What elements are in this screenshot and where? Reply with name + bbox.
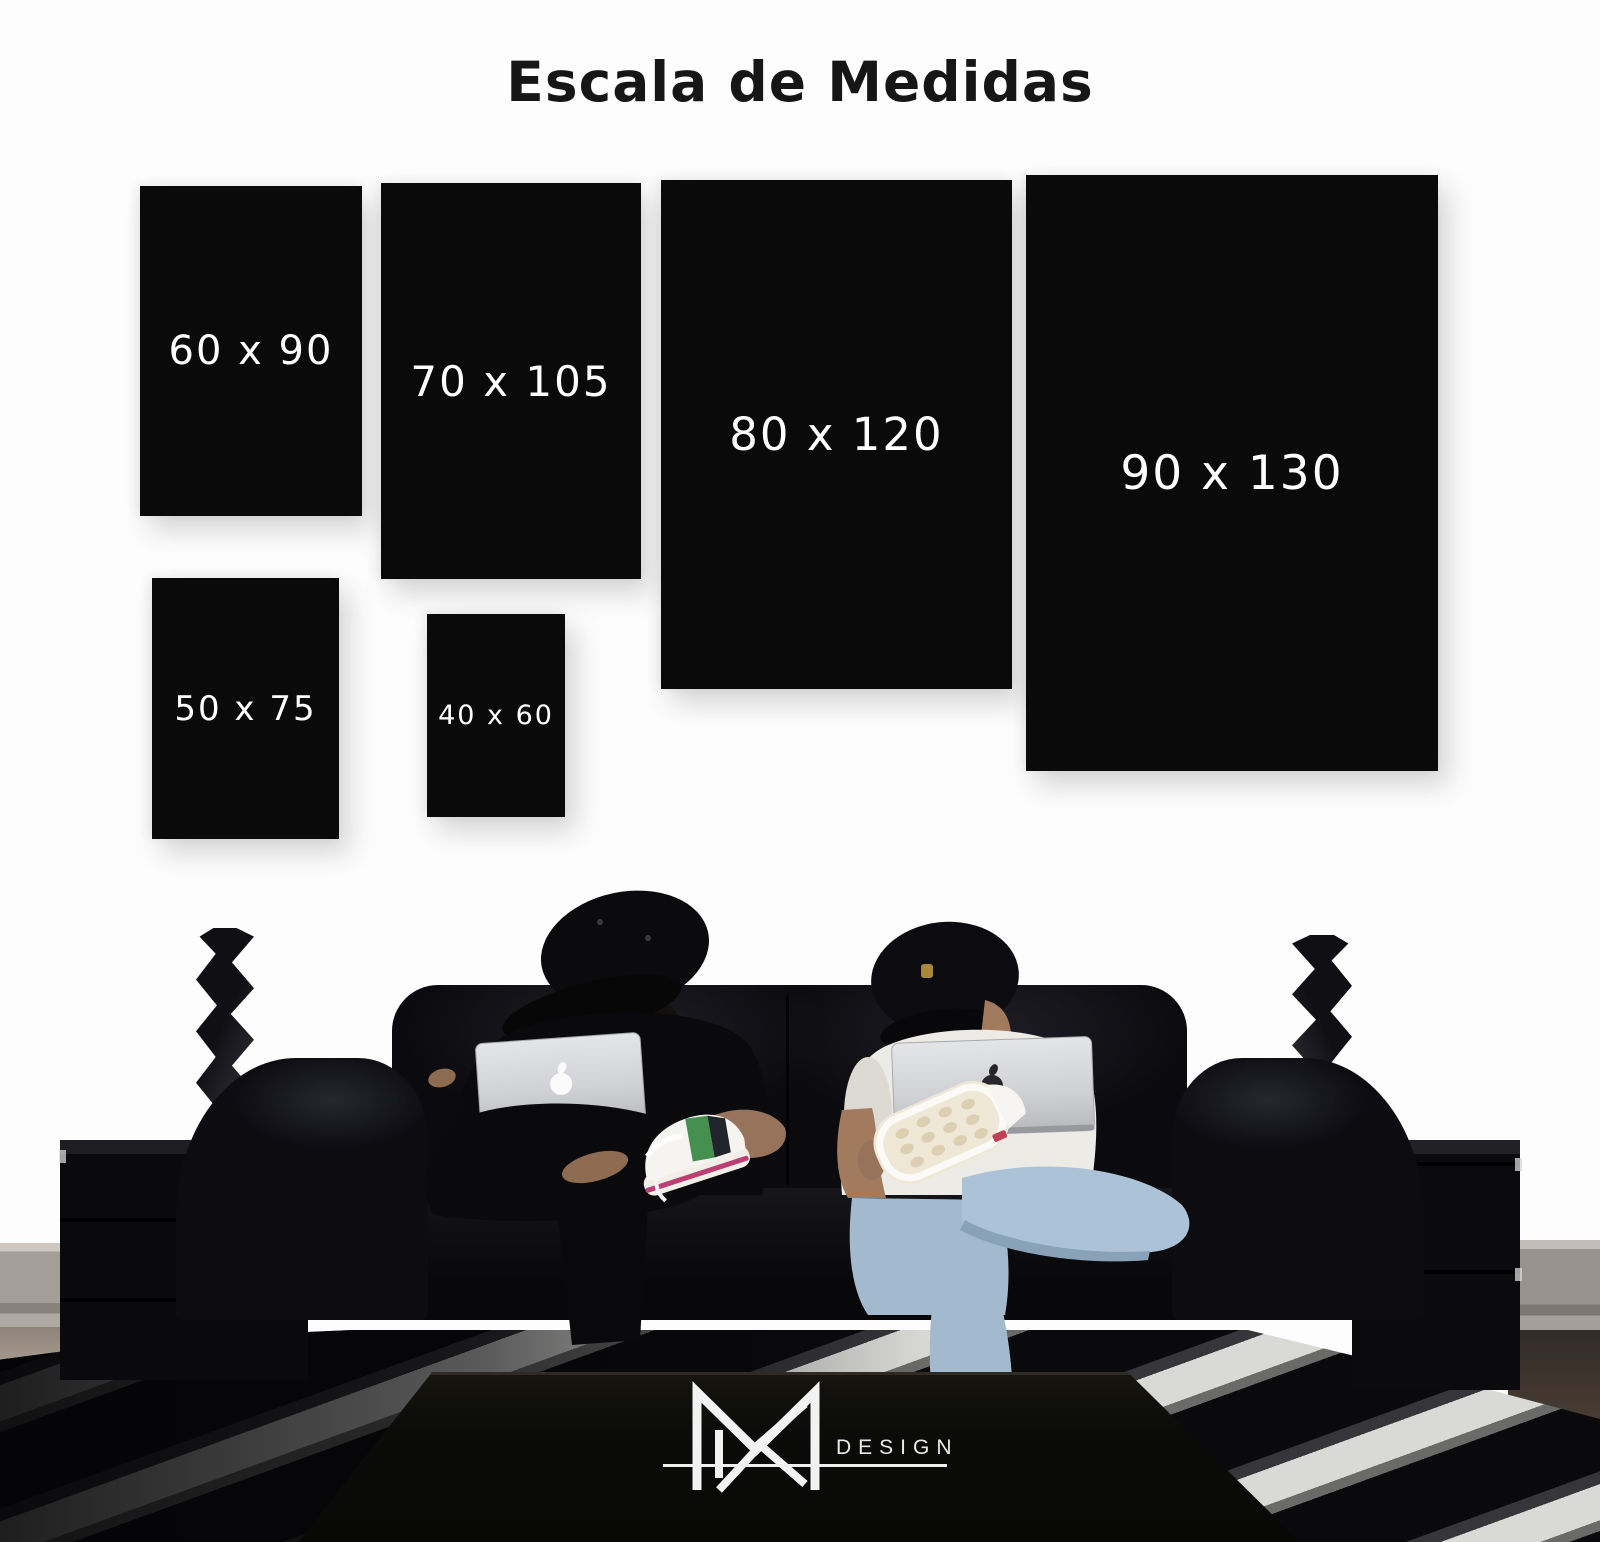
size-label-40x60: 40 x 60 <box>438 700 554 731</box>
logo-rule-line <box>663 1464 947 1467</box>
size-label-80x120: 80 x 120 <box>729 408 943 461</box>
cap-stud <box>645 935 651 941</box>
size-panel-40x60: 40 x 60 <box>427 614 565 817</box>
size-panel-90x130: 90 x 130 <box>1026 175 1438 771</box>
size-label-90x130: 90 x 130 <box>1120 446 1343 501</box>
cap-shield-badge <box>921 964 933 978</box>
size-panel-80x120: 80 x 120 <box>661 180 1012 689</box>
size-panel-70x105: 70 x 105 <box>381 183 641 579</box>
brand-logo: DESIGN <box>655 1378 955 1528</box>
size-panel-60x90: 60 x 90 <box>140 186 362 516</box>
left-man <box>426 876 786 1345</box>
page-title: Escala de Medidas <box>0 50 1600 114</box>
size-panel-50x75: 50 x 75 <box>152 578 339 839</box>
size-label-70x105: 70 x 105 <box>410 357 611 406</box>
cap-stud <box>597 919 603 925</box>
size-label-60x90: 60 x 90 <box>169 328 334 374</box>
size-label-50x75: 50 x 75 <box>174 689 316 729</box>
ripped-knee-skin <box>426 1066 458 1091</box>
left-man-sock-leg <box>555 1190 648 1345</box>
poster-canvas: Escala de Medidas 60 x 90 70 x 105 80 x … <box>0 0 1600 1542</box>
brand-wordmark: DESIGN <box>836 1436 959 1460</box>
